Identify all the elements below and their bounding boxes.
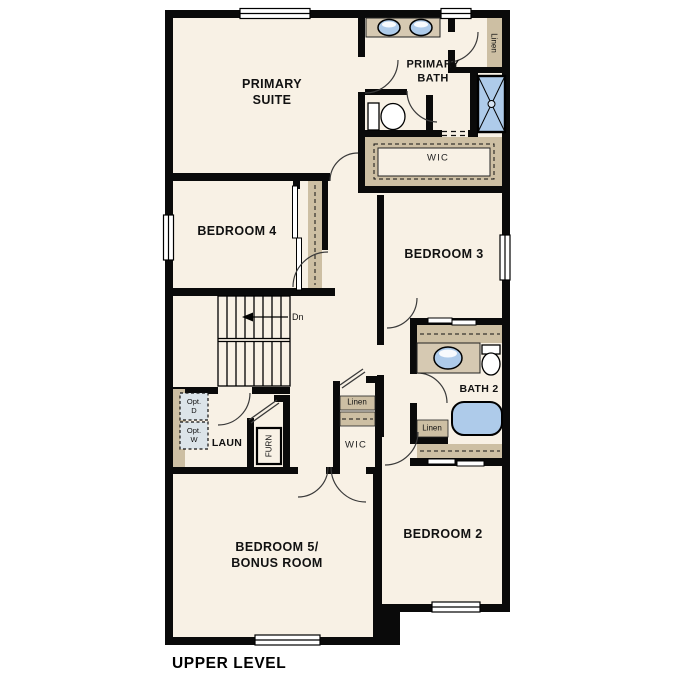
label-stairs-down: Dn bbox=[292, 312, 304, 322]
window bbox=[164, 215, 174, 260]
label-furnace: FURN bbox=[265, 435, 274, 457]
window bbox=[432, 602, 480, 612]
room-label-bedroom-3: BEDROOM 3 bbox=[404, 246, 483, 262]
primary-toilet bbox=[368, 103, 405, 130]
label-wic-primary: WIC bbox=[427, 153, 449, 164]
room-label-primary-suite: PRIMARY SUITE bbox=[242, 76, 302, 109]
room-label-primary-bath: PRIMARY BATH bbox=[406, 58, 459, 87]
room-label-bedroom-5-bonus: BEDROOM 5/ BONUS ROOM bbox=[231, 539, 323, 572]
room-label-laundry: LAUN bbox=[212, 437, 242, 449]
stairs bbox=[218, 296, 290, 386]
bath2-vanity bbox=[417, 343, 480, 373]
window bbox=[240, 9, 310, 19]
window bbox=[500, 235, 510, 280]
label-optional-washer: Opt. W bbox=[187, 427, 201, 445]
bathtub bbox=[452, 402, 502, 435]
label-optional-dryer: Opt. D bbox=[187, 398, 201, 416]
label-linen-hall: Linen bbox=[347, 398, 367, 407]
primary-vanity bbox=[366, 18, 440, 37]
window bbox=[255, 635, 320, 645]
room-label-bedroom-4: BEDROOM 4 bbox=[197, 223, 276, 239]
cased-opening bbox=[442, 130, 468, 137]
window bbox=[441, 9, 471, 19]
room-label-bath-2: BATH 2 bbox=[460, 383, 499, 395]
floorplan-page: PRIMARY SUITE PRIMARY BATH BEDROOM 4 BED… bbox=[0, 0, 687, 687]
shower bbox=[478, 76, 505, 132]
room-label-bedroom-2: BEDROOM 2 bbox=[403, 526, 482, 542]
bath2-toilet bbox=[482, 345, 500, 375]
label-wic-bedroom5: WIC bbox=[345, 440, 367, 451]
plan-title: UPPER LEVEL bbox=[172, 655, 286, 673]
floorplan-drawing bbox=[0, 0, 687, 687]
label-linen-upper: Linen bbox=[490, 33, 499, 53]
label-linen-bath2: Linen bbox=[422, 424, 442, 433]
